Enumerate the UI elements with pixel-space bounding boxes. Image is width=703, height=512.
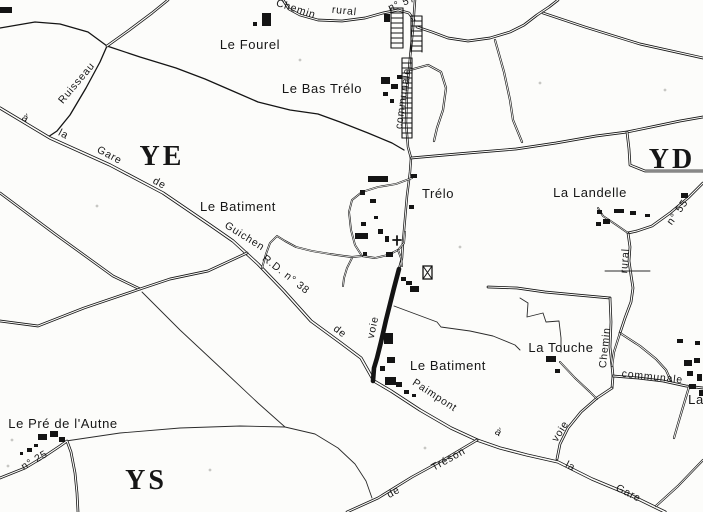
building-mark xyxy=(391,84,398,89)
building-mark xyxy=(361,222,366,226)
building-mark xyxy=(630,211,636,215)
scan-speck xyxy=(299,59,302,62)
building-mark xyxy=(546,356,556,362)
building-mark xyxy=(396,382,402,387)
building-mark xyxy=(409,205,414,209)
scan-speck xyxy=(539,82,542,85)
map-svg: YEYDYSLe FourelLe Bas TréloTréloLa Lande… xyxy=(0,0,703,512)
building-mark xyxy=(370,199,376,203)
building-mark xyxy=(411,174,417,178)
building-mark xyxy=(50,431,58,437)
building-mark xyxy=(694,358,700,363)
scan-speck xyxy=(7,465,10,468)
building-mark xyxy=(374,216,378,219)
building-mark xyxy=(614,209,624,213)
place-label: La Touche xyxy=(528,340,593,355)
scan-speck xyxy=(209,469,212,472)
place-label: Le Bas Trélo xyxy=(282,81,362,96)
building-mark xyxy=(385,377,396,385)
place-label: La xyxy=(688,392,703,407)
section-label: YD xyxy=(649,144,695,175)
place-label: Le Batiment xyxy=(200,199,276,214)
building-mark xyxy=(20,452,23,455)
building-mark xyxy=(596,222,601,226)
building-mark xyxy=(677,339,683,343)
scan-speck xyxy=(11,439,14,442)
building-mark xyxy=(387,357,395,363)
building-mark xyxy=(27,448,32,452)
section-label: YE xyxy=(140,141,185,172)
building-mark xyxy=(355,233,368,239)
building-mark xyxy=(378,229,383,234)
building-mark xyxy=(253,22,257,26)
building-mark xyxy=(363,252,367,256)
building-mark xyxy=(406,281,412,285)
place-label: Le Pré de l'Autne xyxy=(8,416,118,431)
scan-speck xyxy=(424,447,427,450)
scan-speck xyxy=(459,246,462,249)
building-mark xyxy=(390,99,394,103)
scan-speck xyxy=(664,89,667,92)
building-mark xyxy=(368,176,388,182)
building-mark xyxy=(38,434,47,440)
building-mark xyxy=(384,14,390,22)
building-mark xyxy=(555,369,560,373)
building-mark xyxy=(695,341,700,345)
building-mark xyxy=(360,190,365,195)
building-mark xyxy=(684,360,692,366)
scan-speck xyxy=(96,205,99,208)
place-label: Le Fourel xyxy=(220,37,280,52)
building-mark xyxy=(404,390,409,394)
building-mark xyxy=(0,7,12,13)
building-mark xyxy=(412,394,416,397)
road-label: rural xyxy=(618,248,632,274)
building-mark xyxy=(381,77,390,84)
building-mark xyxy=(385,236,389,242)
building-mark xyxy=(645,214,650,217)
building-mark xyxy=(262,13,271,26)
building-mark xyxy=(384,333,393,344)
building-mark xyxy=(383,92,388,96)
building-mark xyxy=(380,366,385,371)
building-mark xyxy=(59,437,65,442)
place-label: La Landelle xyxy=(553,185,627,200)
building-mark xyxy=(687,371,693,376)
building-mark xyxy=(386,252,393,257)
cadastral-map-view: YEYDYSLe FourelLe Bas TréloTréloLa Lande… xyxy=(0,0,703,512)
section-label: YS xyxy=(125,465,167,496)
building-mark xyxy=(34,444,38,447)
building-mark xyxy=(401,277,406,281)
building-mark xyxy=(603,219,610,224)
place-label: Le Batiment xyxy=(410,358,486,373)
building-mark xyxy=(681,193,688,198)
building-mark xyxy=(697,374,702,381)
building-mark xyxy=(689,384,696,389)
place-label: Trélo xyxy=(422,186,454,201)
building-mark xyxy=(410,286,419,292)
building-mark xyxy=(597,210,602,214)
